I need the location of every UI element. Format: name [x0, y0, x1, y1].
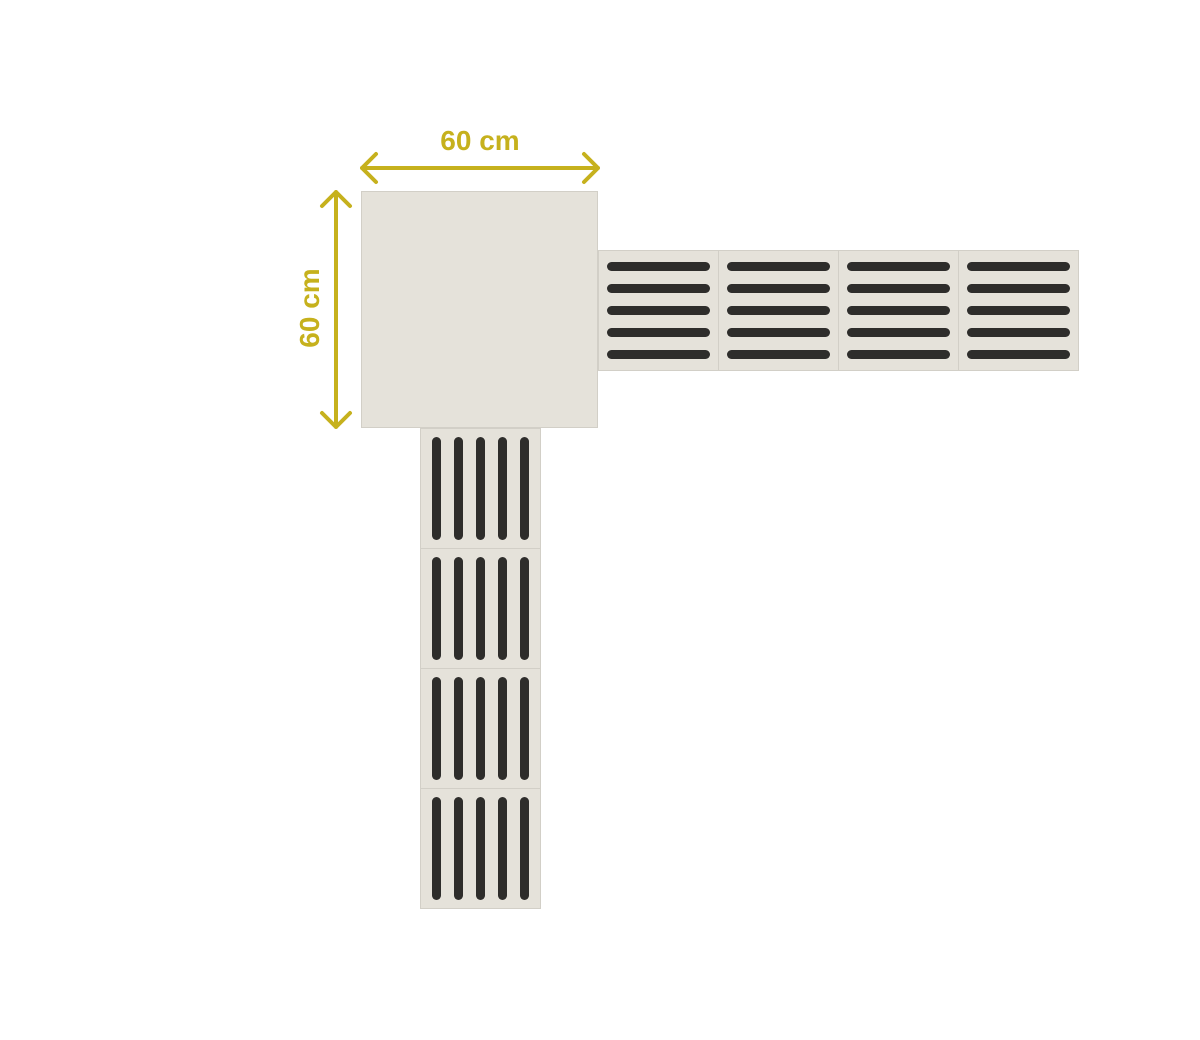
tactile-bar: [967, 306, 1070, 315]
tactile-bar: [520, 797, 529, 900]
tactile-bar: [454, 557, 463, 660]
tactile-bar: [607, 350, 710, 359]
tactile-bar: [967, 350, 1070, 359]
vertical-tile-3: [420, 668, 541, 789]
vertical-tile-column: [420, 428, 541, 909]
horizontal-tile-2: [718, 250, 839, 371]
tactile-bar: [454, 797, 463, 900]
tactile-bar: [520, 437, 529, 540]
tactile-bar: [727, 306, 830, 315]
horizontal-tile-3: [838, 250, 959, 371]
tactile-bar: [454, 437, 463, 540]
tactile-bar: [967, 328, 1070, 337]
tactile-bar: [967, 284, 1070, 293]
tactile-bar: [847, 262, 950, 271]
tactile-bar: [727, 284, 830, 293]
tactile-bar: [498, 677, 507, 780]
tactile-bar: [847, 350, 950, 359]
tactile-bar: [727, 350, 830, 359]
vertical-tile-2: [420, 548, 541, 669]
tactile-bar: [607, 284, 710, 293]
tactile-bar: [847, 306, 950, 315]
tactile-bar: [498, 797, 507, 900]
horizontal-tile-1: [598, 250, 719, 371]
horizontal-tile-row: [598, 250, 1079, 371]
tactile-bar: [432, 437, 441, 540]
tactile-bar: [432, 677, 441, 780]
tactile-bar: [607, 328, 710, 337]
tactile-bar: [432, 797, 441, 900]
tactile-bar: [967, 262, 1070, 271]
tactile-bar: [476, 437, 485, 540]
tactile-bar: [498, 437, 507, 540]
tactile-bar: [520, 557, 529, 660]
vertical-tile-4: [420, 788, 541, 909]
vertical-tile-1: [420, 428, 541, 549]
tactile-bar: [432, 557, 441, 660]
width-dimension-arrow: [360, 150, 600, 186]
tactile-bar: [847, 284, 950, 293]
tactile-bar: [520, 677, 529, 780]
tactile-bar: [476, 677, 485, 780]
tactile-paving-diagram: 60 cm 60 cm: [0, 0, 1200, 1040]
height-dimension-arrow: [318, 190, 354, 429]
tactile-bar: [476, 557, 485, 660]
tactile-bar: [476, 797, 485, 900]
tactile-bar: [847, 328, 950, 337]
tactile-bar: [607, 306, 710, 315]
tactile-bar: [727, 262, 830, 271]
tactile-bar: [498, 557, 507, 660]
tactile-bar: [607, 262, 710, 271]
tactile-bar: [727, 328, 830, 337]
horizontal-tile-4: [958, 250, 1079, 371]
corner-tile-plain: [361, 191, 598, 428]
tactile-bar: [454, 677, 463, 780]
